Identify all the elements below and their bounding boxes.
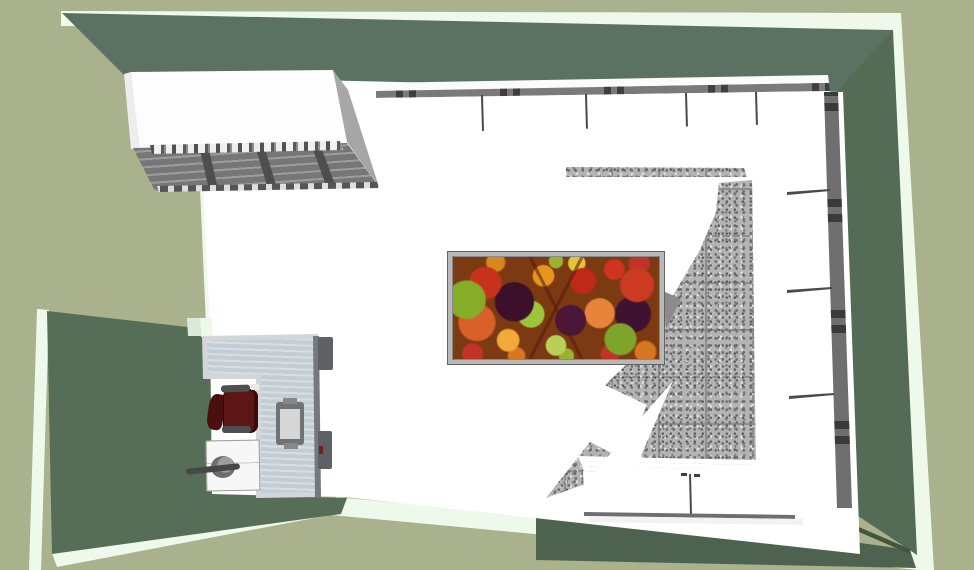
cabinet-handle <box>681 473 687 476</box>
visitor-chair-front-bar <box>284 443 298 449</box>
cabinet-handle <box>694 474 700 477</box>
visitor-chair-seat[interactable] <box>280 409 300 439</box>
room-render-viewport <box>0 0 974 570</box>
chair-label <box>251 384 259 390</box>
power-indicator <box>319 446 323 454</box>
computer-tower[interactable] <box>318 337 333 370</box>
office-chair-armrest <box>222 426 251 433</box>
visitor-chair-back-bar <box>283 398 297 404</box>
office-chair-armrest <box>221 384 250 392</box>
fruit-print-table[interactable] <box>448 252 664 364</box>
